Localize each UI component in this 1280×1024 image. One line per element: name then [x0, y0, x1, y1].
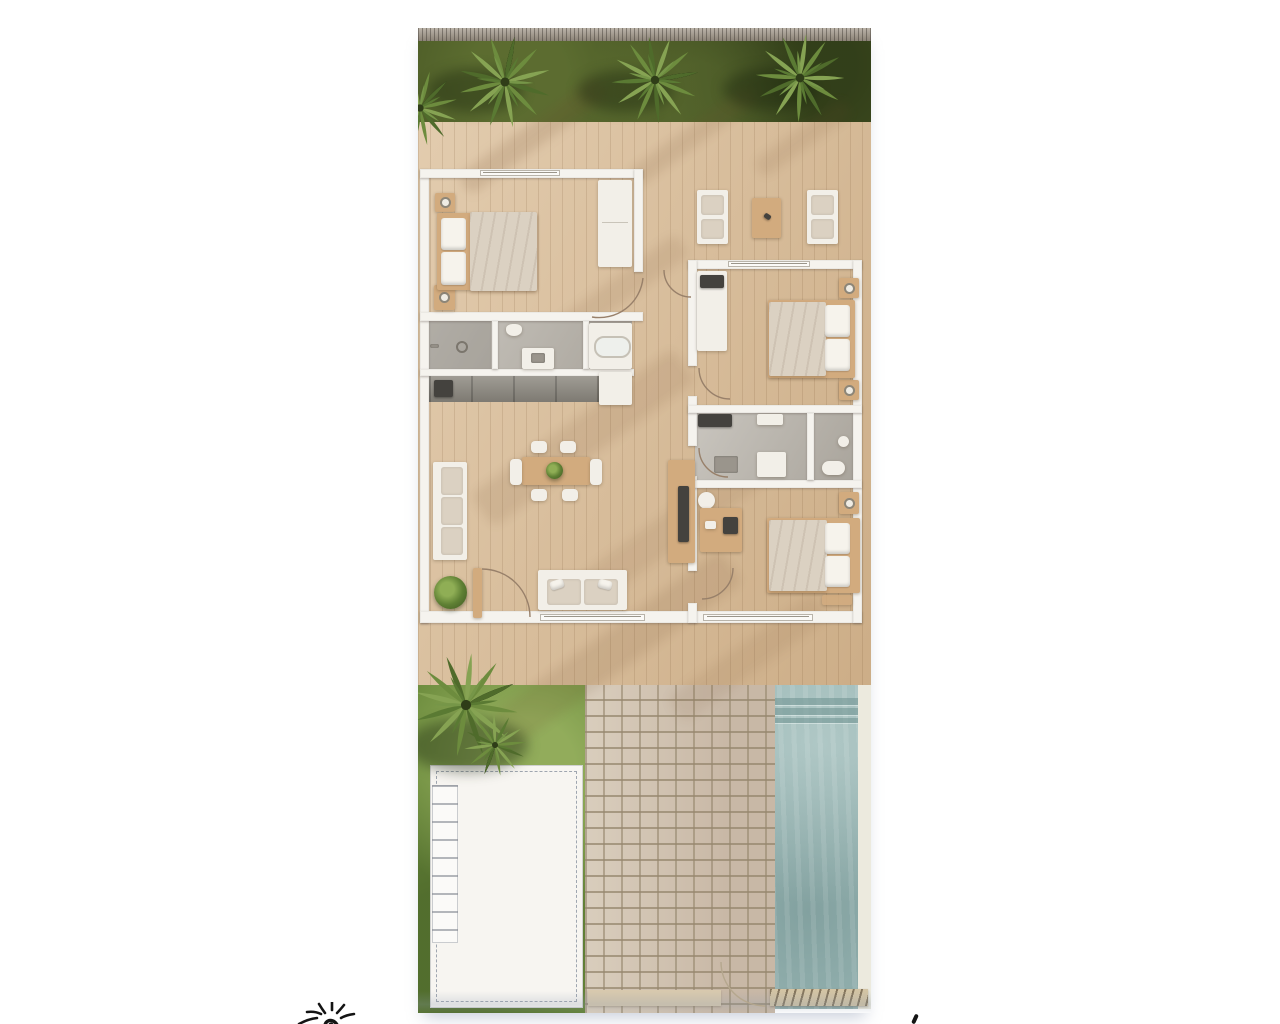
vanity-sink	[522, 348, 554, 369]
palm-tree-icon	[450, 28, 560, 137]
lamp-icon	[844, 283, 855, 294]
lamp-icon	[440, 197, 451, 208]
wall-left	[420, 169, 429, 623]
shower-cabin	[757, 452, 786, 477]
pillow	[825, 523, 850, 554]
dining-chair	[590, 459, 602, 485]
pool-steps	[775, 698, 858, 705]
wall-bath2-bed3	[688, 480, 862, 488]
round-sink	[838, 436, 849, 447]
lamp-icon	[844, 385, 855, 396]
pillow	[825, 305, 850, 337]
chair-cushion	[701, 219, 724, 239]
coffee-table	[752, 198, 781, 238]
steps-strip	[432, 785, 458, 943]
wall-bath2-partition	[807, 413, 814, 480]
palm-tree-icon	[747, 28, 853, 131]
kitchen-counter	[429, 376, 599, 402]
shower-head-icon	[430, 344, 439, 348]
bed	[767, 518, 860, 593]
desk	[700, 508, 742, 552]
blanket	[769, 520, 827, 591]
wall-bath1-top	[420, 312, 643, 321]
floor-plan	[418, 28, 871, 1013]
sofa-cushion	[441, 527, 463, 555]
kitchen-sink	[434, 380, 453, 397]
sofa-cushion	[441, 467, 463, 495]
wardrobe-tray	[700, 275, 724, 288]
blanket	[769, 302, 826, 376]
pillow	[825, 556, 850, 587]
master-bed	[437, 213, 537, 290]
wall-wing-left	[688, 396, 697, 446]
wall-bath1-partition	[492, 321, 498, 369]
chair-cushion	[811, 219, 834, 239]
tv-screen	[678, 486, 689, 542]
pool	[775, 685, 858, 1009]
cropped-text-mark	[911, 1014, 919, 1024]
nightstand	[839, 278, 859, 298]
sofa	[433, 462, 467, 560]
kitchen-cabinet	[599, 372, 632, 405]
lounge-chair	[697, 190, 728, 244]
bed-bench	[822, 595, 852, 605]
sofa-cushion	[441, 497, 463, 525]
bathroom-counter	[698, 414, 732, 427]
laptop	[723, 517, 738, 534]
wall-master-right	[634, 169, 643, 272]
potted-plant-icon	[434, 576, 467, 609]
nightstand	[839, 492, 859, 514]
nightstand	[839, 380, 859, 400]
toilet	[506, 324, 522, 336]
nightstand	[435, 193, 455, 212]
shower-drain-icon	[456, 341, 468, 353]
dining-chair	[560, 441, 576, 453]
table-item	[763, 212, 772, 220]
dining-chair	[531, 489, 547, 501]
pool-steps	[775, 708, 858, 715]
lamp-icon	[844, 498, 855, 509]
loveseat-sofa	[538, 570, 627, 610]
wall-bed2-bath2	[688, 405, 862, 413]
window	[728, 261, 810, 267]
entry-door-leaf	[473, 568, 482, 618]
desk-chair	[698, 492, 715, 509]
blanket	[470, 212, 537, 291]
pillow	[441, 218, 466, 250]
bed	[768, 300, 855, 378]
paper-sheet	[705, 521, 716, 529]
toilet	[822, 461, 845, 475]
chair-cushion	[701, 195, 724, 215]
bathtub-basin	[594, 336, 631, 358]
shower-tray	[714, 456, 738, 473]
palm-tree-icon	[418, 63, 465, 153]
sliding-door-window	[540, 614, 645, 621]
palm-tree-icon	[458, 708, 532, 782]
table-plant-icon	[546, 462, 563, 479]
pillow	[825, 339, 850, 371]
wall-wing-left	[688, 603, 697, 623]
window	[480, 170, 560, 176]
vanity-sink	[757, 414, 783, 425]
dining-chair	[562, 489, 578, 501]
chair-cushion	[811, 195, 834, 215]
tv-console	[668, 460, 695, 563]
page	[0, 0, 1280, 1024]
palm-tree-icon	[603, 28, 707, 132]
pillow	[441, 252, 466, 285]
lounge-chair	[807, 190, 838, 244]
bathtub	[589, 323, 632, 369]
wardrobe	[697, 271, 727, 351]
lamp-icon	[439, 292, 450, 303]
dining-chair	[510, 459, 522, 485]
plan-drop-shadow	[418, 991, 871, 1013]
brick-patio	[585, 685, 775, 1013]
wardrobe	[598, 180, 632, 267]
sink-basin	[531, 353, 545, 363]
wall-wing-left	[688, 260, 697, 366]
window	[703, 614, 813, 621]
pool-steps	[775, 718, 858, 723]
sun-logo-icon	[296, 1002, 370, 1024]
dining-chair	[531, 441, 547, 453]
wardrobe-door-line	[602, 222, 628, 223]
pool-coping	[858, 685, 871, 1009]
